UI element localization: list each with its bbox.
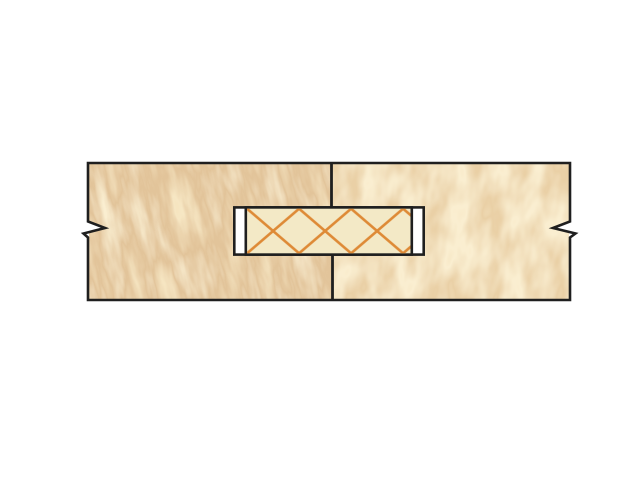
- edge-joint-diagram: [0, 0, 640, 480]
- tenon-crosshatch: [247, 209, 410, 254]
- diagram-canvas: [0, 0, 640, 480]
